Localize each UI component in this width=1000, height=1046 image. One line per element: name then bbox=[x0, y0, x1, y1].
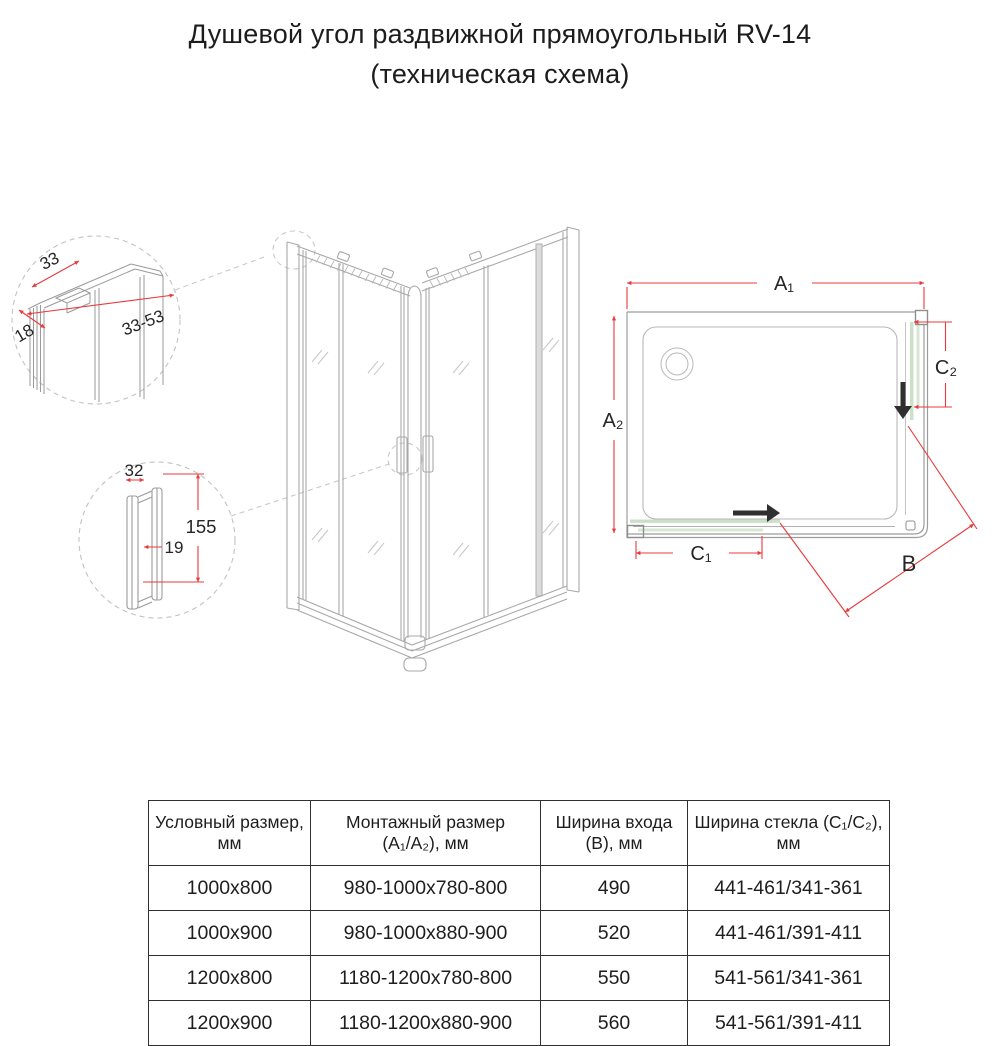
handle-gap-dim: 19 bbox=[165, 538, 184, 557]
table-cell: 1200x900 bbox=[149, 1001, 311, 1046]
table-row: 1200x800 1180-1200x780-800 550 541-561/3… bbox=[149, 956, 890, 1001]
table-cell: 541-561/391-411 bbox=[688, 1001, 890, 1046]
header-entry-width: Ширина входа (B), мм bbox=[541, 801, 688, 866]
bottom-sliding-glass bbox=[630, 520, 780, 523]
table-cell: 980-1000x780-800 bbox=[311, 866, 541, 911]
left-glass-panels bbox=[303, 250, 404, 641]
plan-view: A₁ A₂ C₁ C₂ B bbox=[602, 273, 977, 617]
table-cell: 441-461/391-411 bbox=[688, 911, 890, 956]
wall-profile-detail-callout: 33 18 33-53 bbox=[11, 236, 180, 404]
drain-circle-inner bbox=[666, 353, 688, 375]
profile-width-dim: 33 bbox=[37, 248, 62, 274]
header-glass-width: Ширина стекла (C₁/C₂), мм bbox=[688, 801, 890, 866]
isometric-enclosure-view bbox=[287, 227, 579, 671]
technical-diagram: 33 18 33-53 32 19 155 bbox=[0, 0, 1000, 790]
dim-b-label: B bbox=[902, 551, 917, 576]
table-row: 1200x900 1180-1200x880-900 560 541-561/3… bbox=[149, 1001, 890, 1046]
table-cell: 560 bbox=[541, 1001, 688, 1046]
table-cell: 441-461/341-361 bbox=[688, 866, 890, 911]
bottom-fixed-glass bbox=[638, 529, 763, 532]
table-cell: 541-561/341-361 bbox=[688, 956, 890, 1001]
bottom-rails bbox=[297, 586, 567, 658]
right-fixed-glass bbox=[917, 322, 920, 408]
left-wall-profile bbox=[287, 242, 299, 610]
table-row: 1000x800 980-1000x780-800 490 441-461/34… bbox=[149, 866, 890, 911]
dim-c1-label: C₁ bbox=[690, 543, 711, 565]
table-cell: 490 bbox=[541, 866, 688, 911]
door-handles bbox=[397, 436, 433, 473]
handle-height-dim: 155 bbox=[186, 516, 217, 537]
plan-dimension-lines bbox=[614, 283, 977, 617]
handle-width-dim: 32 bbox=[125, 461, 144, 480]
right-glass-panels bbox=[426, 232, 563, 640]
wall-profile-blocks bbox=[628, 311, 928, 538]
shower-tray bbox=[643, 327, 897, 519]
glass-shine-marks bbox=[312, 338, 559, 557]
plan-walls bbox=[627, 312, 915, 538]
table-cell: 1180-1200x880-900 bbox=[311, 1001, 541, 1046]
header-mounting-size: Монтажный размер (A₁/A₂), мм bbox=[311, 801, 541, 866]
table-cell: 550 bbox=[541, 956, 688, 1001]
slide-direction-arrows bbox=[733, 382, 912, 522]
table-cell: 1000x900 bbox=[149, 911, 311, 956]
table-row: 1000x900 980-1000x880-900 520 441-461/39… bbox=[149, 911, 890, 956]
table-cell: 1200x800 bbox=[149, 956, 311, 1001]
table-header-row: Условный размер, мм Монтажный размер (A₁… bbox=[149, 801, 890, 866]
header-nominal-size: Условный размер, мм bbox=[149, 801, 311, 866]
handle-detail-callout: 32 19 155 bbox=[79, 461, 235, 618]
profile-range-dim: 33-53 bbox=[119, 306, 166, 339]
right-sliding-glass bbox=[910, 322, 913, 420]
table-cell: 980-1000x880-900 bbox=[311, 911, 541, 956]
table-cell: 520 bbox=[541, 911, 688, 956]
corner-post bbox=[404, 286, 426, 671]
table-cell: 1000x800 bbox=[149, 866, 311, 911]
handle-sketch bbox=[127, 488, 162, 609]
dim-c2-label: C₂ bbox=[935, 357, 957, 379]
dimension-table: Условный размер, мм Монтажный размер (A₁… bbox=[148, 800, 890, 1046]
dim-a2-label: A₂ bbox=[602, 410, 623, 432]
table-cell: 1180-1200x780-800 bbox=[311, 956, 541, 1001]
right-wall-profile bbox=[567, 227, 579, 592]
dim-a1-label: A₁ bbox=[774, 273, 794, 295]
